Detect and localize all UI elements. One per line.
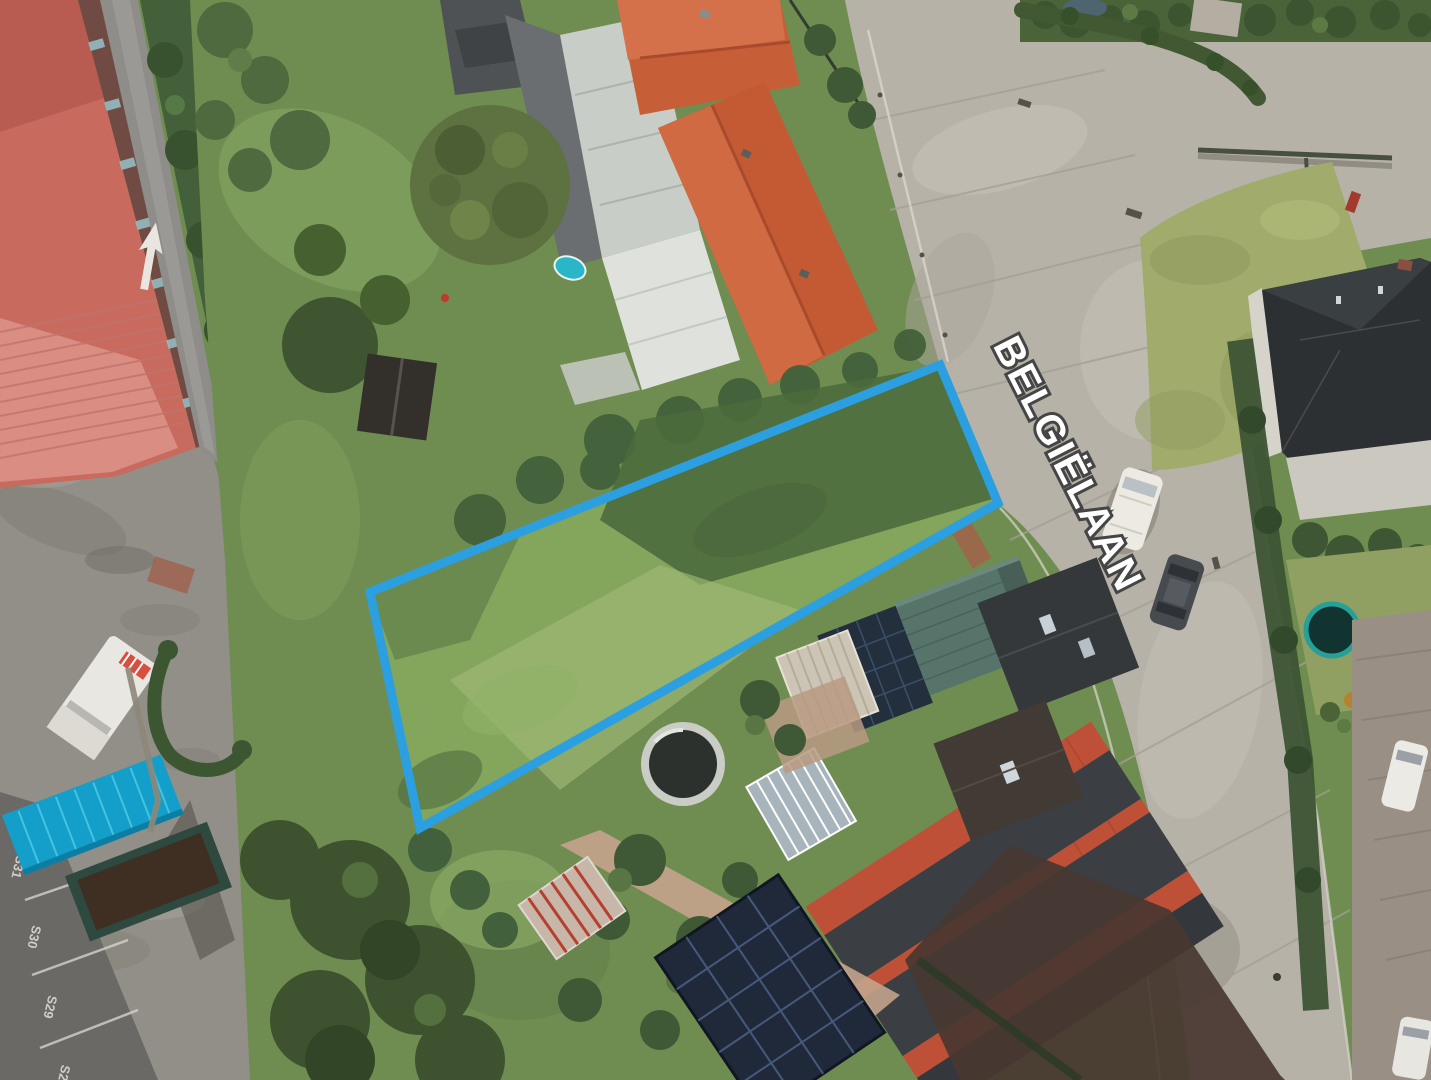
pedestrian [1273,973,1281,981]
aerial-map-image[interactable]: S31 S30 S29 S2 [0,0,1431,1080]
garden-shed [357,354,437,441]
red-object [441,294,449,302]
driveway-bricks [1352,610,1431,1080]
map-viewport[interactable]: S31 S30 S29 S2 [0,0,1431,1080]
